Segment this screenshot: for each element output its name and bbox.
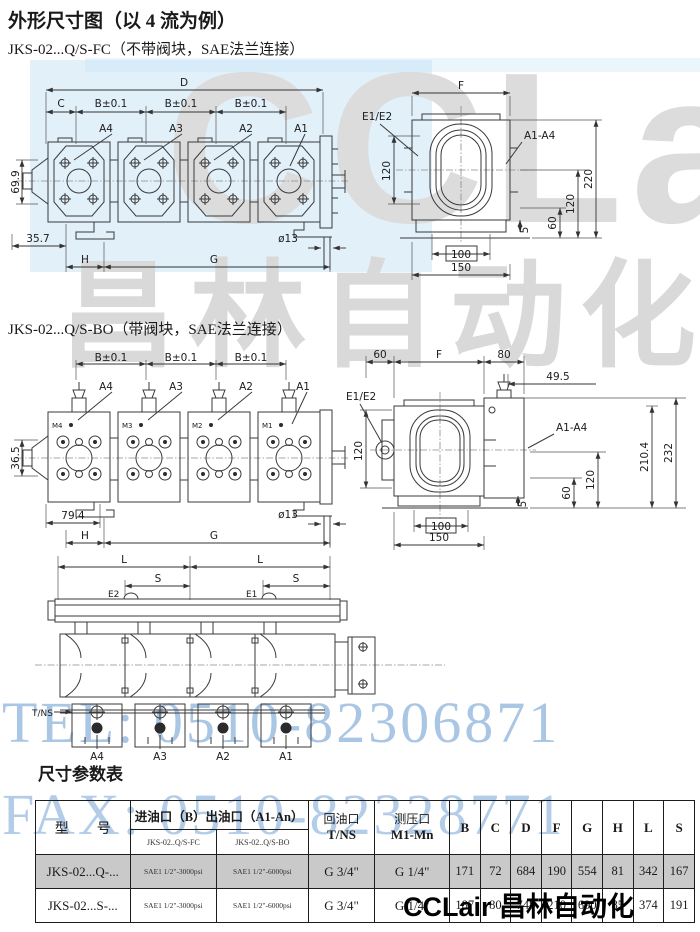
cell-bo-port: SAE1 1/2"-6000psi [217, 889, 308, 923]
dim-60-right: 60 [561, 486, 573, 499]
datasheet-page: CCLair 昌林自动化 TEL: 0510-82306871 FAX: 051… [0, 0, 700, 932]
label-a3: A3 [169, 381, 183, 393]
pump-sections [23, 136, 345, 270]
label-e1e2: E1/E2 [346, 391, 376, 403]
dim-b3: B±0.1 [235, 352, 268, 364]
drawing-fc-side-view: D C B±0.1 B±0.1 B±0.1 A4 A3 A2 A1 69.9 3… [8, 74, 353, 286]
dim-120-right: 120 [585, 470, 597, 490]
label-a3: A3 [153, 751, 167, 762]
parameter-table: 型 号 进油口（B）出油口（A1-An） 回油口 T/NS 测压口 M1-Mn … [35, 800, 695, 923]
gauge-port-sub: M1-Mn [391, 827, 434, 842]
dim-l-left: L [121, 554, 127, 566]
label-e1e2: E1/E2 [362, 111, 392, 123]
dimension-labels: L L S S E2 E1 T/NS A4 A3 A2 A1 [31, 554, 300, 762]
dim-69-9: 69.9 [10, 170, 22, 193]
dim-dia13: ø13 [278, 509, 298, 521]
cell-fc-port: SAE1 1/2"-3000psi [130, 855, 217, 889]
dim-80: 80 [497, 349, 510, 361]
label-a1: A1 [296, 381, 310, 393]
flange-body-with-valve [376, 374, 528, 508]
col-header-s: S [664, 801, 695, 855]
dim-l-right: L [257, 554, 263, 566]
dim-5: 5 [519, 227, 531, 234]
dim-b2: B±0.1 [165, 352, 198, 364]
dim-79-4: 79.4 [61, 510, 85, 522]
dim-35-7: 35.7 [26, 233, 49, 245]
page-title: 外形尺寸图（以 4 流为例） [8, 6, 236, 33]
col-header-b: B [449, 801, 480, 855]
col-header-model: 型 号 [36, 801, 131, 855]
dim-5: 5 [517, 501, 529, 508]
label-e1: E1 [246, 590, 257, 600]
col-header-f: F [541, 801, 572, 855]
dim-d: D [180, 77, 188, 89]
label-a1: A1 [294, 123, 308, 135]
label-a1: A1 [279, 751, 293, 762]
cell-h: 85 [603, 889, 633, 923]
cell-c: 72 [480, 855, 510, 889]
dim-b2: B±0.1 [165, 98, 198, 110]
dim-36-5: 36.5 [10, 446, 22, 469]
table-title: 尺寸参数表 [38, 760, 123, 785]
col-subheader-fc: JKS-02..Q/S-FC [130, 830, 217, 855]
cell-f: 210 [541, 889, 572, 923]
label-a2: A2 [239, 381, 253, 393]
dim-s-left: S [155, 573, 162, 585]
label-a4: A4 [99, 123, 113, 135]
dim-g: G [210, 530, 218, 542]
cell-gauge: G 1/4" [375, 855, 449, 889]
label-a1-a4: A1-A4 [556, 422, 588, 434]
dim-h: H [81, 530, 89, 542]
dimension-labels: F E1/E2 120 A1-A4 220 120 60 100 150 5 [362, 80, 595, 274]
section1-subtitle: JKS-02...Q/S-FC（不带阀块，SAE法兰连接） [8, 38, 304, 59]
cell-return: G 3/4" [308, 855, 375, 889]
cell-gauge: G 1/4" [375, 889, 449, 923]
dimension-lines [380, 93, 602, 280]
label-e2: E2 [108, 590, 119, 600]
cell-b: 187 [449, 889, 480, 923]
dim-b1: B±0.1 [95, 352, 128, 364]
dim-b1: B±0.1 [95, 98, 128, 110]
dimension-lines [58, 556, 330, 749]
label-tns: T/NS [31, 709, 53, 719]
cell-c: 80 [480, 889, 510, 923]
cell-b: 171 [449, 855, 480, 889]
cell-return: G 3/4" [308, 889, 375, 923]
cell-model: JKS-02...S-... [36, 889, 131, 923]
dim-220: 220 [583, 169, 595, 189]
dim-232: 232 [663, 443, 675, 463]
dimension-lines [360, 356, 686, 550]
col-header-return-port: 回油口 T/NS [308, 801, 375, 855]
dim-dia13: ø13 [278, 233, 298, 245]
label-a2: A2 [216, 751, 230, 762]
label-a4: A4 [99, 381, 113, 393]
dimension-labels: 60 F 80 49.5 E1/E2 120 A1-A4 232 210.4 1… [346, 349, 675, 544]
cell-g: 690 [572, 889, 603, 923]
label-m4: M4 [52, 422, 63, 430]
label-m3: M3 [122, 422, 133, 430]
dim-100: 100 [451, 249, 471, 261]
label-a2: A2 [239, 123, 253, 135]
cell-g: 554 [572, 855, 603, 889]
dim-120-left: 120 [353, 441, 365, 461]
label-m1: M1 [262, 422, 273, 430]
dimension-labels: D C B±0.1 B±0.1 B±0.1 A4 A3 A2 A1 69.9 3… [10, 77, 308, 266]
dim-c: C [57, 98, 64, 110]
table-row: JKS-02...S-... SAE1 1/2"-3000psi SAE1 1/… [36, 889, 695, 923]
return-port-label: 回油口 [324, 812, 360, 826]
cell-l: 342 [633, 855, 664, 889]
manifold-and-body [48, 593, 375, 747]
dim-60: 60 [547, 216, 559, 229]
label-m2: M2 [192, 422, 203, 430]
dim-60-top: 60 [373, 349, 386, 361]
col-subheader-bo: JKS-02..Q/S-BO [217, 830, 308, 855]
col-header-g: G [572, 801, 603, 855]
dim-210-4: 210.4 [639, 442, 651, 472]
cell-fc-port: SAE1 1/2"-3000psi [130, 889, 217, 923]
section2-subtitle: JKS-02...Q/S-BO（带阀块，SAE法兰连接） [8, 318, 292, 339]
cell-h: 81 [603, 855, 633, 889]
cell-bo-port: SAE1 1/2"-6000psi [217, 855, 308, 889]
dim-s-right: S [293, 573, 300, 585]
return-port-sub: T/NS [327, 827, 356, 842]
drawing-bo-flange-view: 60 F 80 49.5 E1/E2 120 A1-A4 232 210.4 1… [346, 348, 698, 555]
cell-f: 190 [541, 855, 572, 889]
drawing-top-view: L L S S E2 E1 T/NS A4 A3 A2 A1 [30, 542, 450, 762]
cell-d: 684 [511, 855, 542, 889]
cell-d: 748 [511, 889, 542, 923]
label-a3: A3 [169, 123, 183, 135]
watermark-blue-strip [85, 58, 700, 72]
col-header-inlet-outlet: 进油口（B）出油口（A1-An） [130, 801, 308, 830]
col-header-l: L [633, 801, 664, 855]
col-header-c: C [480, 801, 510, 855]
dim-150: 150 [451, 262, 471, 274]
col-header-h: H [603, 801, 633, 855]
flange-body [400, 114, 530, 238]
col-header-d: D [511, 801, 542, 855]
gauge-port-label: 测压口 [394, 812, 430, 826]
dimension-labels: B±0.1 B±0.1 B±0.1 A4 A3 A2 A1 M4 M3 M2 M… [10, 352, 310, 542]
dim-g: G [210, 254, 218, 266]
dim-b3: B±0.1 [235, 98, 268, 110]
dim-120-left: 120 [381, 161, 393, 181]
drawing-bo-side-view: B±0.1 B±0.1 B±0.1 A4 A3 A2 A1 M4 M3 M2 M… [8, 352, 353, 552]
dim-49-5: 49.5 [546, 371, 569, 383]
cell-s: 167 [664, 855, 695, 889]
cell-s: 191 [664, 889, 695, 923]
dim-120-right: 120 [565, 194, 577, 214]
table-row: JKS-02...Q-... SAE1 1/2"-3000psi SAE1 1/… [36, 855, 695, 889]
dim-f: F [458, 80, 464, 92]
cell-l: 374 [633, 889, 664, 923]
label-a1-a4: A1-A4 [524, 130, 556, 142]
drawing-fc-flange-view: F E1/E2 120 A1-A4 220 120 60 100 150 5 [360, 78, 610, 290]
dim-f: F [436, 349, 442, 361]
col-header-gauge-port: 测压口 M1-Mn [375, 801, 449, 855]
dim-h: H [81, 254, 89, 266]
cell-model: JKS-02...Q-... [36, 855, 131, 889]
